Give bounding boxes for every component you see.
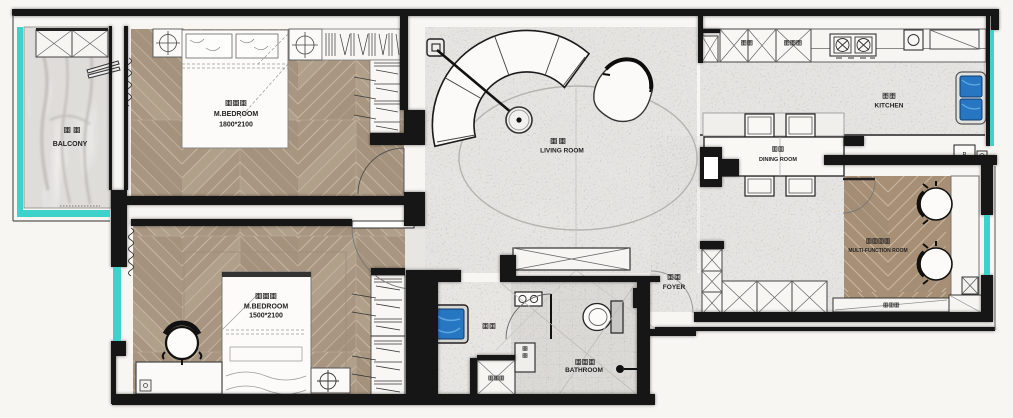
svg-text:DINING ROOM: DINING ROOM [759,157,797,163]
svg-text:1800*2100: 1800*2100 [219,122,253,129]
svg-text:M.BEDROOM: M.BEDROOM [244,304,289,311]
svg-text:LIVING ROOM: LIVING ROOM [540,148,584,155]
svg-text:B: B [962,153,966,159]
svg-text:1500*2100: 1500*2100 [249,313,283,320]
svg-text:KITCHEN: KITCHEN [875,103,904,110]
svg-text:M.BEDROOM: M.BEDROOM [214,111,259,118]
svg-text:BALCONY: BALCONY [53,141,88,148]
svg-text:MULTI-FUNCTION ROOM: MULTI-FUNCTION ROOM [848,248,907,254]
svg-text:BATHROOM: BATHROOM [565,367,603,374]
svg-text:FOYER: FOYER [663,284,686,291]
